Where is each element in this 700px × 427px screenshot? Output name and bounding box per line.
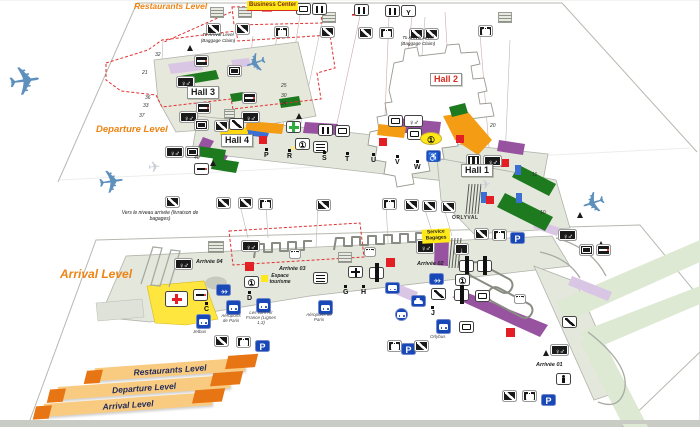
transfer-flights-icon bbox=[429, 273, 444, 285]
restaurant-icon bbox=[312, 3, 327, 15]
escalator-icon bbox=[474, 228, 489, 240]
door-S: S bbox=[322, 151, 327, 162]
escalator-icon bbox=[431, 288, 446, 300]
smoking-icon bbox=[193, 289, 208, 301]
scan-edge bbox=[0, 420, 700, 424]
plane-icon bbox=[96, 164, 127, 199]
gate-number: 33 bbox=[143, 103, 149, 109]
door-T: T bbox=[345, 152, 349, 163]
person-icon bbox=[556, 373, 571, 385]
baggage-icon bbox=[387, 340, 402, 352]
smoking-icon bbox=[194, 163, 209, 175]
adp-shuttle-label-a: Aéroports de Paris bbox=[219, 313, 243, 323]
bar-icon bbox=[401, 5, 416, 17]
gate-number: 36 bbox=[145, 95, 151, 101]
counter-icon bbox=[454, 289, 469, 301]
escalator-icon bbox=[502, 390, 517, 402]
door-C: C bbox=[204, 302, 209, 313]
door-D: D bbox=[247, 291, 252, 302]
monitor-icon bbox=[335, 125, 350, 137]
smoking-icon bbox=[194, 55, 209, 67]
bus-icon bbox=[196, 314, 211, 329]
toilets-icon bbox=[174, 258, 193, 270]
departure-level-label: Departure Level bbox=[96, 124, 168, 135]
smoking-icon bbox=[242, 92, 257, 104]
monitor-icon bbox=[459, 321, 474, 333]
monitor-icon bbox=[579, 244, 594, 256]
baggage-icon bbox=[236, 336, 251, 348]
counter-icon bbox=[477, 260, 492, 272]
airport-terminal-map: Restaurants Level Departure Level Arriva… bbox=[0, 0, 700, 427]
stairs-hatch-icon bbox=[498, 12, 512, 23]
baggage-icon bbox=[364, 247, 376, 257]
stairs-marker-icon bbox=[543, 350, 549, 356]
toilets-icon bbox=[404, 115, 423, 127]
escalator-icon bbox=[316, 199, 331, 211]
arrival-level-label: Arrival Level bbox=[60, 267, 132, 281]
adp-shuttle-label-b: Aéroports de Paris bbox=[306, 312, 332, 322]
baggage-icon bbox=[382, 198, 397, 210]
baggage-icon bbox=[379, 27, 394, 39]
door-J: J bbox=[431, 306, 435, 317]
monitor-icon bbox=[194, 119, 209, 131]
hall-3-label: Hall 3 bbox=[187, 86, 219, 99]
stairs-hatch-icon bbox=[338, 252, 352, 263]
monitor-icon bbox=[227, 65, 242, 77]
baggage-icon bbox=[492, 229, 507, 241]
monitor-icon bbox=[475, 290, 490, 302]
stairs-hatch-icon bbox=[210, 7, 224, 18]
to-arrival-caption-left: To Arrival Level (Baggage Claim) bbox=[196, 32, 240, 43]
escalator-icon bbox=[358, 27, 373, 39]
bus-icon bbox=[385, 282, 400, 294]
baggage-icon bbox=[478, 25, 493, 37]
escalator-icon bbox=[404, 199, 419, 211]
smoking-icon bbox=[596, 244, 611, 256]
baggage-icon bbox=[258, 198, 273, 210]
baggage-icon bbox=[514, 294, 526, 304]
hall-2-label: Hall 2 bbox=[430, 73, 462, 86]
medical-icon bbox=[165, 291, 188, 307]
door-W: W bbox=[414, 160, 421, 171]
toilets-icon bbox=[550, 344, 569, 356]
restaurant-icon bbox=[318, 124, 333, 136]
escalator-icon bbox=[214, 120, 229, 132]
orlybus-label: Orlybus bbox=[430, 334, 446, 339]
gate-number: 10 bbox=[540, 210, 546, 216]
baggage-icon bbox=[522, 390, 537, 402]
ticket-counters-icon bbox=[313, 272, 328, 284]
parking-icon bbox=[255, 340, 270, 352]
arrival-apron bbox=[96, 299, 144, 321]
arrivee-02-label: Arrivée 02 bbox=[417, 261, 444, 268]
gate-number: 24 bbox=[281, 101, 287, 107]
gate-number: 11 bbox=[532, 172, 537, 178]
restaurant-icon bbox=[354, 4, 369, 16]
escalator-icon bbox=[216, 197, 231, 209]
wheelchair-icon bbox=[426, 150, 441, 162]
arrivee-03-label: Arrivée 03 bbox=[279, 266, 306, 273]
pharmacy-icon bbox=[286, 121, 301, 133]
escalator-icon bbox=[238, 197, 253, 209]
jetbus-label: Jetbus bbox=[193, 329, 206, 334]
door-U: U bbox=[371, 153, 376, 164]
gate-number: 21 bbox=[142, 70, 148, 76]
orlyval-label: ORLYVAL bbox=[452, 215, 479, 221]
monitor-icon bbox=[388, 115, 403, 127]
arrivee-04-label: Arrivée 04 bbox=[196, 259, 223, 266]
escalator-icon bbox=[422, 200, 437, 212]
espace-tourisme-label: Espace tourisme bbox=[267, 273, 293, 285]
door-G: G bbox=[343, 285, 348, 296]
toilets-icon bbox=[165, 146, 184, 158]
escalator-icon bbox=[320, 26, 335, 38]
taxi-icon bbox=[411, 295, 426, 307]
counter-icon bbox=[369, 267, 384, 279]
meeting-point-icon bbox=[348, 266, 363, 278]
escalator-icon bbox=[214, 335, 229, 347]
stairs-marker-icon bbox=[187, 45, 193, 51]
parking-icon bbox=[510, 232, 525, 244]
bus-icon bbox=[436, 319, 451, 334]
gate-number: 30 bbox=[281, 93, 287, 99]
parking-icon bbox=[541, 394, 556, 406]
stairs-marker-icon bbox=[210, 160, 216, 166]
door-V: V bbox=[395, 155, 400, 166]
stairs-marker-icon bbox=[296, 113, 302, 119]
gate-number: 25 bbox=[281, 83, 287, 89]
plane-icon bbox=[147, 159, 161, 175]
escalator-icon bbox=[441, 201, 456, 213]
service-bagages-label: Service Bagages bbox=[422, 228, 451, 243]
business-center-label: Business Center bbox=[247, 1, 298, 11]
escalator-icon bbox=[165, 196, 180, 208]
plane-icon bbox=[479, 177, 491, 191]
restaurant-icon bbox=[385, 5, 400, 17]
toilets-icon bbox=[558, 229, 577, 241]
stairs-hatch-icon bbox=[208, 241, 224, 253]
hall-4-label: Hall 4 bbox=[221, 134, 253, 147]
gate-number: 20 bbox=[490, 123, 496, 129]
transfer-flights-icon bbox=[216, 284, 231, 296]
shuttle-bus-icon bbox=[395, 308, 408, 321]
escalator-icon bbox=[229, 118, 244, 130]
plane-icon bbox=[5, 60, 44, 104]
info-icon bbox=[244, 276, 259, 288]
door-H: H bbox=[361, 285, 366, 296]
legend-label: Arrival Level bbox=[102, 398, 154, 412]
hall-1-label: Hall 1 bbox=[461, 164, 493, 177]
gate-number: 32 bbox=[155, 52, 161, 58]
vers-niveau-caption: Vers le niveau arrivée (livraison de bag… bbox=[120, 210, 200, 222]
door-P: P bbox=[264, 148, 269, 159]
to-arrival-caption-right: To Arrival Level (Baggage Claim) bbox=[396, 35, 440, 46]
door-R: R bbox=[287, 149, 292, 160]
escalator-icon bbox=[562, 316, 577, 328]
info-icon bbox=[295, 138, 310, 150]
arrivee-01-label: Arrivée 01 bbox=[536, 362, 563, 369]
stairs-marker-icon bbox=[577, 212, 583, 218]
smoking-icon bbox=[196, 102, 211, 114]
gate-number: 40 bbox=[194, 155, 200, 161]
air-france-coaches-label: Les cars Air France (Lignes 1,3) bbox=[246, 310, 276, 326]
restaurants-level-label: Restaurants Level bbox=[134, 1, 207, 11]
baggage-icon bbox=[274, 26, 289, 38]
info-icon bbox=[420, 132, 442, 145]
gate-number: 37 bbox=[139, 113, 145, 119]
escalator-icon bbox=[414, 340, 429, 352]
toilets-icon bbox=[241, 240, 260, 252]
baggage-icon bbox=[289, 249, 301, 259]
lift-down-icon bbox=[454, 243, 469, 255]
